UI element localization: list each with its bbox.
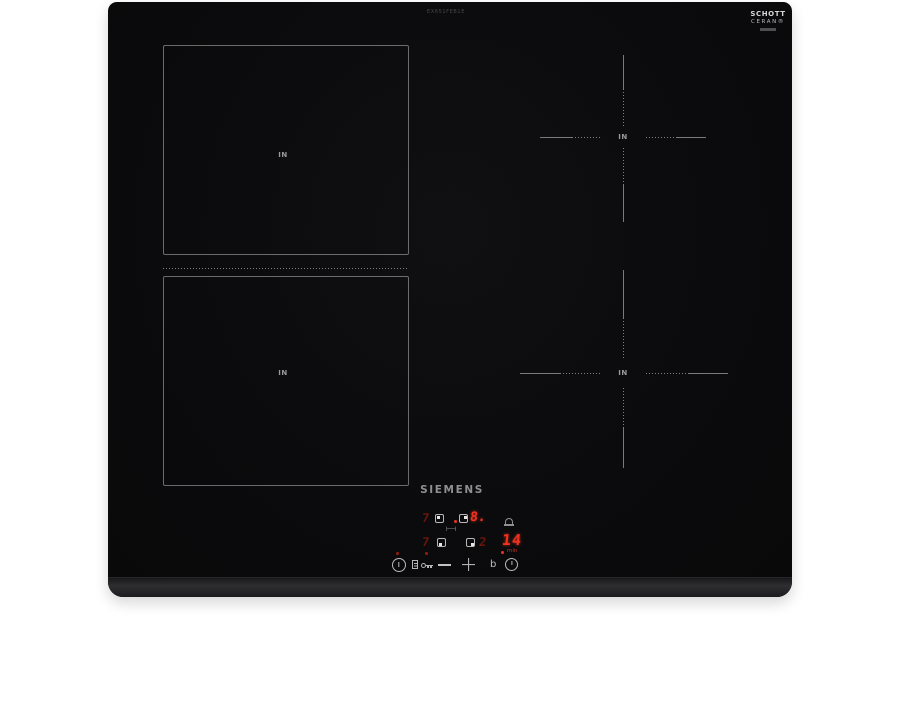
cross-arm [646, 137, 676, 138]
cross-arm [623, 388, 624, 428]
cross-arm [623, 318, 624, 358]
child-lock-button[interactable] [412, 559, 434, 571]
power-level-front-left: 7 [421, 536, 429, 548]
zone-select-rear-right-key[interactable] [459, 514, 468, 523]
zone-marking-in-front-right: IN [618, 369, 627, 377]
zone-flex-rear-left [163, 45, 409, 255]
flex-zone-separator [163, 268, 407, 269]
alarm-bell-icon [505, 518, 513, 524]
product-photo: EX651FEB1E SCHOTT CERAN® IN IN IN [0, 0, 900, 721]
timer-unit-label: min [507, 549, 517, 555]
zone-select-front-right-key[interactable] [466, 538, 475, 547]
zone-select-front-left-key[interactable] [437, 538, 446, 547]
cooktop-surface: EX651FEB1E SCHOTT CERAN® IN IN IN [108, 2, 792, 597]
zone-marking-in-front-left: IN [278, 369, 287, 377]
schott-ceran-logo: SCHOTT CERAN® [744, 10, 792, 31]
cross-arm [688, 373, 728, 374]
schott-logo-subtext-bar [760, 28, 776, 31]
cross-arm [623, 428, 624, 468]
power-button[interactable] [392, 558, 406, 572]
front-bevel-edge [108, 577, 792, 597]
cross-arm [676, 137, 706, 138]
indicator-dot [396, 552, 399, 555]
cross-arm [560, 373, 600, 374]
power-level-rear-left: 7 [421, 512, 429, 524]
child-lock-pad-icon [412, 560, 418, 569]
minus-button[interactable] [438, 564, 451, 566]
cross-arm [520, 373, 560, 374]
schott-logo-line2: CERAN® [744, 19, 792, 25]
cross-arm [540, 137, 572, 138]
boost-button[interactable]: b [490, 560, 496, 570]
cross-arm [623, 89, 624, 127]
schott-logo-line1: SCHOTT [744, 10, 792, 18]
indicator-dot [454, 520, 457, 523]
zone-flex-front-left [163, 276, 409, 486]
siemens-logo: SIEMENS [408, 484, 496, 496]
key-icon [426, 565, 433, 566]
power-level-rear-right: 8. [469, 511, 486, 524]
power-level-front-right: 2 [478, 536, 486, 548]
cross-arm [572, 137, 600, 138]
timer-display: 14 [501, 533, 523, 548]
cross-arm [623, 148, 624, 185]
zone-select-rear-left-key[interactable] [435, 514, 444, 523]
cross-arm [623, 185, 624, 222]
cross-arm [623, 55, 624, 89]
plus-button[interactable] [462, 558, 475, 571]
zone-marking-in-rear-left: IN [278, 151, 287, 159]
zone-marking-in-rear-right: IN [618, 133, 627, 141]
bridge-icon: ⊢⊣ [446, 526, 455, 533]
model-text: EX651FEB1E [408, 9, 484, 15]
indicator-dot [425, 552, 428, 555]
cross-arm [623, 270, 624, 318]
cross-arm [646, 373, 688, 374]
indicator-dot [501, 551, 504, 554]
timer-button[interactable] [505, 558, 518, 571]
